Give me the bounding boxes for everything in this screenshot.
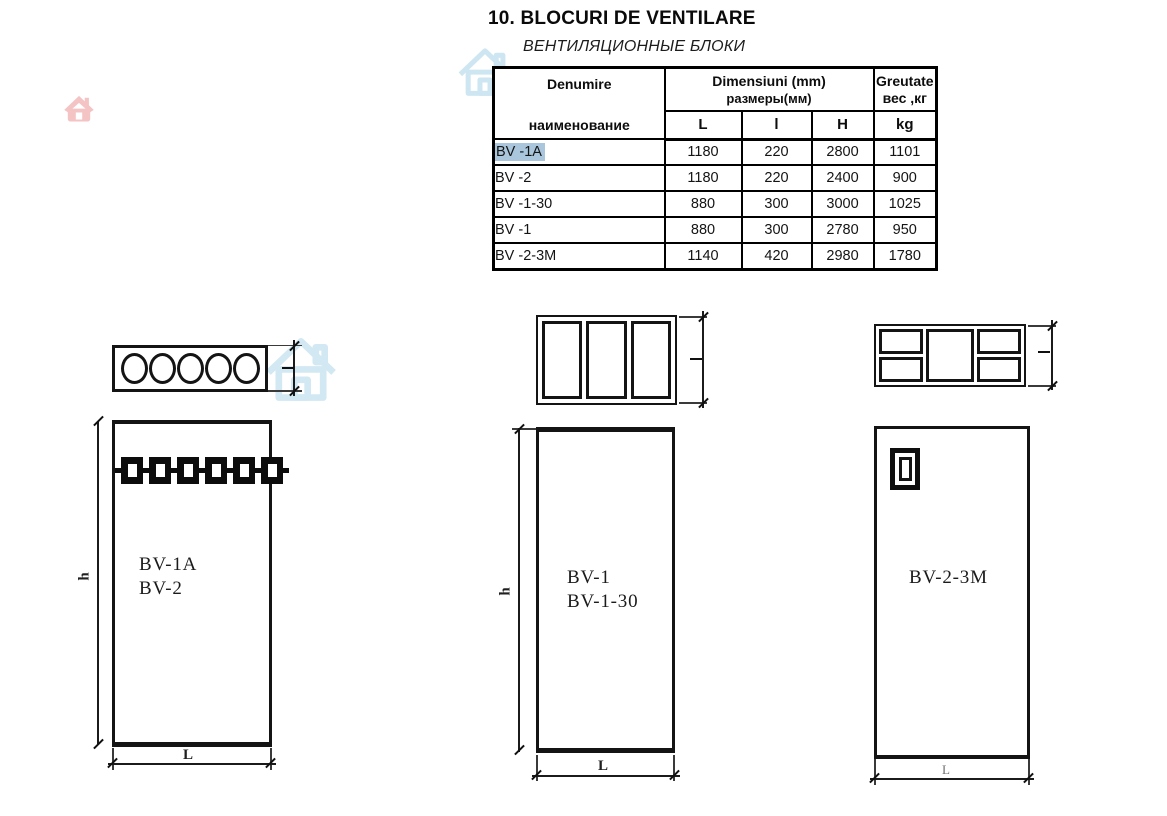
dim-line-L [532, 775, 680, 777]
cell-l: 220 [742, 139, 812, 165]
dim-line-h [518, 428, 520, 752]
cell-name: BV -1A [494, 139, 665, 165]
dim-label-l [1038, 351, 1050, 353]
top-view [112, 345, 268, 392]
cell-l: 220 [742, 165, 812, 191]
vent-channel [631, 321, 671, 399]
vent-opening [177, 457, 199, 484]
dim-label-h: h [498, 587, 515, 595]
vent-hole [121, 353, 148, 384]
cell-H: 2800 [812, 139, 874, 165]
header-col-L: L [665, 111, 742, 139]
cell-l: 420 [742, 243, 812, 269]
block-label: BV-2-3M [909, 566, 988, 590]
header-dimensions: Dimensiuni (mm) размеры(мм) [665, 68, 874, 112]
cell-L: 1180 [665, 165, 742, 191]
top-view [536, 315, 677, 405]
vent-opening-inner [899, 457, 912, 481]
channel-column [977, 329, 1021, 382]
spec-table: Denumire наименование Dimensiuni (mm) ра… [492, 66, 938, 271]
vent-channel [586, 321, 626, 399]
extension-line [874, 759, 876, 785]
extension-line [268, 390, 302, 392]
vent-channels [538, 317, 675, 403]
vent-opening [121, 457, 143, 484]
vent-opening [890, 448, 920, 490]
page-title: 10. BLOCURI DE VENTILARE [488, 8, 756, 30]
cell-L: 880 [665, 191, 742, 217]
vent-channel [879, 357, 923, 382]
cell-H: 2400 [812, 165, 874, 191]
extension-line [512, 428, 536, 430]
header-dims-ru: размеры(мм) [666, 90, 873, 107]
vent-holes [115, 348, 265, 389]
cell-H: 2980 [812, 243, 874, 269]
vent-channel [542, 321, 582, 399]
cell-kg: 950 [874, 217, 937, 243]
home-icon [264, 326, 338, 410]
block-label: BV-1 BV-1-30 [567, 566, 638, 614]
vent-channel-row [115, 457, 269, 484]
table-row: BV -1A 1180 220 2800 1101 [494, 139, 937, 165]
dim-line [702, 311, 704, 408]
vent-hole [177, 353, 204, 384]
header-weight: Greutate вес ,кг [874, 68, 937, 112]
cell-L: 880 [665, 217, 742, 243]
block-label: BV-1A BV-2 [139, 553, 197, 601]
dim-label-L: L [598, 758, 608, 775]
header-weight-ru: вес ,кг [875, 90, 936, 107]
connector [283, 468, 289, 473]
dim-label-L: L [183, 747, 193, 764]
cell-kg: 1025 [874, 191, 937, 217]
dim-line-L [870, 778, 1034, 780]
extension-line [536, 755, 538, 781]
extension-line [1028, 759, 1030, 785]
channel-column [879, 329, 923, 382]
cell-kg: 900 [874, 165, 937, 191]
cell-name: BV -2 [494, 165, 665, 191]
dim-label-L: L [942, 762, 950, 778]
cell-l: 300 [742, 217, 812, 243]
cell-H: 3000 [812, 191, 874, 217]
vent-opening [149, 457, 171, 484]
header-weight-ro: Greutate [875, 73, 936, 90]
vent-hole [149, 353, 176, 384]
dim-line [1051, 320, 1053, 390]
vent-channel [977, 329, 1021, 354]
cell-name: BV -1-30 [494, 191, 665, 217]
table-row: BV -1 880 300 2780 950 [494, 217, 937, 243]
vent-channel [977, 357, 1021, 382]
cell-L: 1140 [665, 243, 742, 269]
document-page: 10. BLOCURI DE VENTILARE ВЕНТИЛЯЦИОННЫЕ … [0, 0, 1167, 816]
table-row: BV -2 1180 220 2400 900 [494, 165, 937, 191]
header-name-ru: наименование [495, 117, 664, 133]
cell-kg: 1101 [874, 139, 937, 165]
vent-opening [205, 457, 227, 484]
front-view [874, 426, 1030, 759]
cell-l: 300 [742, 191, 812, 217]
vent-channel [879, 329, 923, 354]
vent-opening [233, 457, 255, 484]
header-name-ro: Denumire [495, 76, 664, 92]
header-col-H: H [812, 111, 874, 139]
table-row: BV -1-30 880 300 3000 1025 [494, 191, 937, 217]
vent-opening [261, 457, 283, 484]
vent-channel [926, 329, 974, 382]
home-icon [63, 90, 95, 126]
dim-label-l [690, 358, 702, 360]
header-name: Denumire наименование [494, 68, 665, 140]
dim-label-h: h [77, 572, 94, 580]
cell-name: BV -1 [494, 217, 665, 243]
cell-kg: 1780 [874, 243, 937, 269]
cell-H: 2780 [812, 217, 874, 243]
table-row: BV -2-3M 1140 420 2980 1780 [494, 243, 937, 269]
vent-hole [205, 353, 232, 384]
page-subtitle: ВЕНТИЛЯЦИОННЫЕ БЛОКИ [523, 38, 745, 56]
top-view [874, 324, 1026, 387]
header-col-l: l [742, 111, 812, 139]
header-col-kg: kg [874, 111, 937, 139]
cell-name: BV -2-3M [494, 243, 665, 269]
vent-channels [876, 326, 1024, 385]
dim-line-h [97, 421, 99, 745]
cell-L: 1180 [665, 139, 742, 165]
dim-label-l [282, 367, 294, 369]
selected-text[interactable]: BV -1A [495, 143, 545, 161]
header-dims-ro: Dimensiuni (mm) [666, 73, 873, 90]
vent-hole [233, 353, 260, 384]
